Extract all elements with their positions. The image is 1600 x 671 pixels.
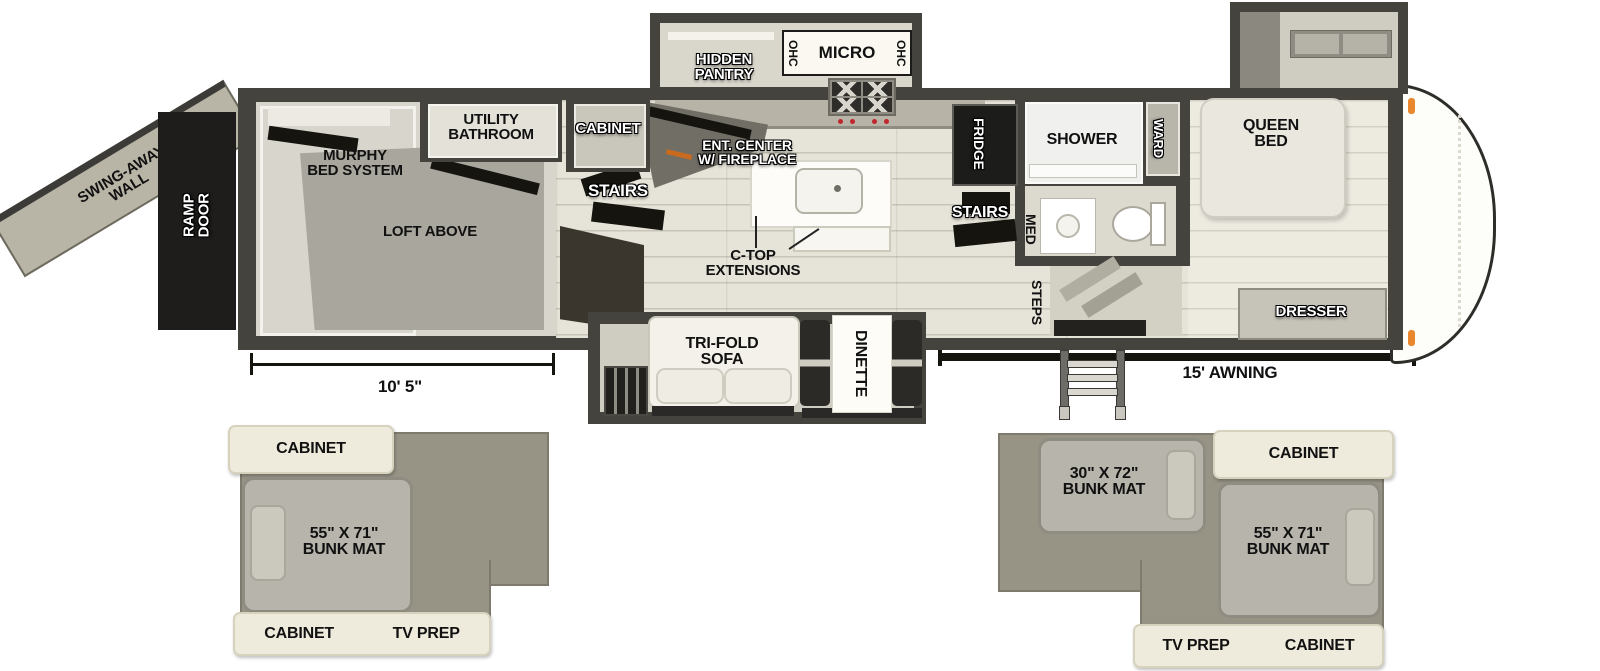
sofa-rug: [652, 406, 794, 416]
entry-ladder-foot: [1115, 406, 1126, 420]
awning-label: 15' AWNING: [1150, 364, 1310, 381]
burner: [832, 82, 861, 96]
awning-tick-left: [938, 348, 942, 366]
dimension-tick-left: [250, 353, 253, 375]
stove-knob: [838, 119, 843, 124]
cabinet-label: CABINET: [560, 121, 656, 136]
toilet-bowl: [1112, 206, 1154, 242]
tri-fold-sofa-label: TRI-FOLD SOFA: [660, 336, 784, 369]
dinette-label: DINETTE: [852, 324, 868, 404]
entry-ladder-foot: [1059, 406, 1070, 420]
micro-label: MICRO: [819, 43, 876, 63]
toilet-tank: [1150, 202, 1166, 246]
ohc-right-label: OHC: [894, 40, 910, 67]
stove-knob: [884, 119, 889, 124]
queen-bed: [1200, 98, 1346, 218]
stairs-garage-label: STAIRS: [572, 182, 664, 199]
sofa-seat-cushion: [724, 368, 792, 404]
clearance-light-bottom: [1408, 330, 1415, 346]
murphy-bed-label: MURPHY BED SYSTEM: [280, 148, 430, 179]
utility-bathroom-label: UTILITY BATHROOM: [428, 112, 554, 143]
loft-left-bottom-bar: CABINET TV PREP: [233, 612, 491, 656]
burner: [863, 98, 892, 112]
bed-slideout-closet: [1240, 12, 1280, 88]
ctop-extensions-label: C-TOP EXTENSIONS: [688, 248, 818, 279]
stove: [828, 78, 896, 116]
slideout-window: [604, 366, 648, 416]
murphy-bed-shape: [268, 108, 390, 126]
ent-center-label: ENT. CENTER W/ FIREPLACE: [682, 138, 812, 167]
dimension-tick-right: [552, 353, 555, 375]
loft-right-tv-prep-label: TV PREP: [1163, 638, 1230, 654]
entry-ladder-rung: [1067, 374, 1118, 382]
stove-knob: [872, 119, 877, 124]
clearance-light-top: [1408, 98, 1415, 114]
loft-left-bunk-label: 55" X 71" BUNK MAT: [282, 526, 406, 559]
pantry-shelf: [668, 32, 774, 40]
stairs-mid-label: STAIRS: [934, 205, 1026, 221]
entry-door-mat: [1054, 320, 1146, 336]
loft-above-label: LOFT ABOVE: [355, 224, 505, 239]
dresser-label: DRESSER: [1240, 304, 1382, 319]
queen-pillow: [1342, 33, 1388, 55]
awning-line: [938, 353, 1416, 361]
front-cap: [1390, 84, 1496, 364]
garage-dimension-label: 10' 5": [340, 378, 460, 395]
stove-knob: [850, 119, 855, 124]
loft-left-cabinet-top-label: CABINET: [276, 441, 346, 457]
overhead-cabinet-micro: OHC MICRO OHC: [782, 30, 912, 76]
sink-faucet: [834, 185, 841, 192]
hidden-pantry-label: HIDDEN PANTRY: [664, 52, 784, 83]
loft-left-bunk-pillow: [250, 505, 286, 581]
queen-bed-label: QUEEN BED: [1205, 118, 1337, 151]
loft-right-bunk-small-label: 30" X 72" BUNK MAT: [1042, 466, 1166, 499]
entry-ladder-rung: [1067, 388, 1118, 396]
dinette-chairs-right: [892, 320, 922, 406]
ward-label: WARD: [1152, 106, 1165, 170]
queen-pillow: [1294, 33, 1340, 55]
entry-ladder-rung: [1067, 360, 1118, 368]
loft-left-tv-prep-label: TV PREP: [393, 626, 460, 642]
steps-label: STEPS: [1030, 274, 1044, 330]
ramp-door-label: RAMP DOOR: [182, 170, 213, 260]
island-sink: [795, 168, 863, 214]
loft-right-cabinet-top: CABINET: [1213, 430, 1394, 479]
dimension-line: [250, 363, 555, 366]
bathroom-sink-bowl: [1056, 214, 1080, 238]
med-label: MED: [1024, 206, 1038, 252]
ctop-pointer-line: [755, 216, 757, 248]
fridge-label: FRIDGE: [972, 110, 986, 178]
dinette-chairs-left: [800, 320, 830, 406]
burner: [863, 82, 892, 96]
front-cap-texture: [1458, 115, 1461, 327]
loft-left-cabinet-bottom-label: CABINET: [264, 626, 334, 642]
loft-left-cabinet-top: CABINET: [228, 425, 394, 474]
rv-floorplan: SWING-AWAY WALL RAMP DOOR UTILITY BATHRO…: [0, 0, 1600, 671]
loft-right-bunk-small-pillow: [1166, 450, 1196, 520]
loft-right-bunk-large-label: 55" X 71" BUNK MAT: [1226, 526, 1350, 559]
loft-right-bottom-bar: TV PREP CABINET: [1133, 624, 1384, 668]
loft-right-cabinet-top-label: CABINET: [1269, 446, 1339, 462]
ohc-left-label: OHC: [784, 40, 800, 67]
loft-right-cabinet-bottom-label: CABINET: [1285, 638, 1355, 654]
burner: [832, 98, 861, 112]
sofa-seat-cushion: [656, 368, 724, 404]
shower-ledge: [1029, 164, 1137, 178]
shower-label: SHOWER: [1025, 132, 1139, 148]
